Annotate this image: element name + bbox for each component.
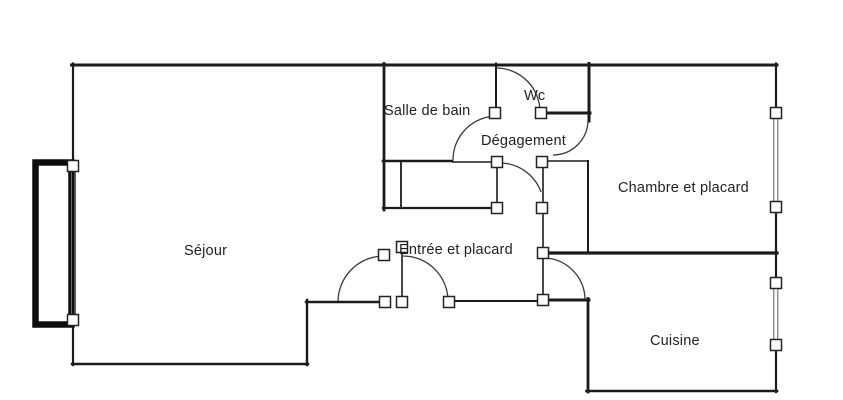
label-salle-de-bain: Salle de bain [384, 103, 470, 119]
floor-plan-drawing: Séjour Salle de bain Wc Dégagement Entré… [0, 0, 843, 400]
cuisine-door-arc [544, 258, 585, 299]
placard-degagement [543, 160, 588, 253]
handle-squares [68, 108, 782, 351]
handle-entry-door-strike [444, 297, 455, 308]
floor-plan-canvas: Séjour Salle de bain Wc Dégagement Entré… [0, 0, 843, 400]
handle-placard1-se [492, 203, 503, 214]
handle-entry-door-left-hinge [380, 297, 391, 308]
handle-sejour-window-top [68, 161, 79, 172]
handle-sejour-window-bottom [68, 315, 79, 326]
handle-cuisine-door-hinge [538, 295, 549, 306]
handle-wc-door-strike [536, 108, 547, 119]
handle-placard2-mid [537, 203, 548, 214]
handle-placard2-top [537, 157, 548, 168]
handle-cuisine-window-top [771, 278, 782, 289]
sejour-balcony-window [36, 163, 72, 325]
placard-entree [383, 162, 497, 208]
sejour-door-right-arc [403, 256, 448, 301]
handle-chambre-window-top [771, 108, 782, 119]
handle-chambre-window-bottom [771, 202, 782, 213]
interior-walls [383, 64, 777, 254]
handle-wc-door-hinge [490, 108, 501, 119]
label-chambre: Chambre et placard [618, 180, 749, 196]
handle-placard2-bottom [538, 248, 549, 259]
label-wc: Wc [524, 88, 545, 104]
handle-entry-left-leaf-tip [379, 250, 390, 261]
handle-placard1-ne [492, 157, 503, 168]
degagement-door-arc [499, 163, 541, 192]
label-cuisine: Cuisine [650, 333, 700, 349]
handle-cuisine-window-bottom [771, 340, 782, 351]
handle-entry-door-right-hinge [397, 297, 408, 308]
room-labels: Séjour Salle de bain Wc Dégagement Entré… [184, 88, 749, 349]
label-sejour: Séjour [184, 243, 227, 259]
label-degagement: Dégagement [481, 133, 566, 149]
sejour-door-left-arc [338, 256, 384, 301]
label-entree: Entrée et placard [399, 242, 513, 258]
